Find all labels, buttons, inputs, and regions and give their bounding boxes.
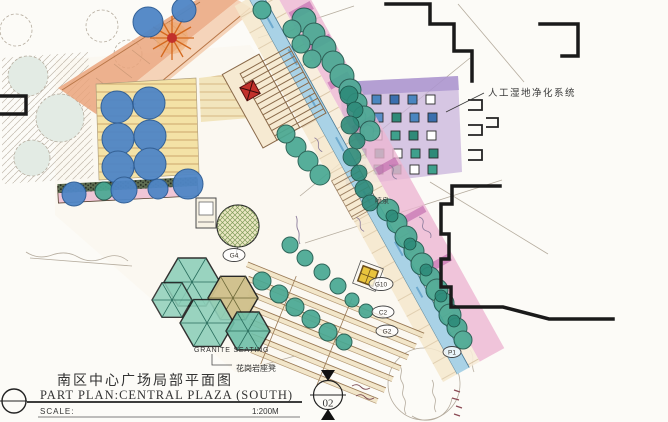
site-plan-svg: G4 G10 C2 G2 P1 人工湿地净化系统 喷泉 GRANITE SEAT… — [0, 0, 668, 422]
marker-label: G4 — [230, 253, 239, 260]
granite-seating-en-label: GRANITE SEATING — [194, 347, 269, 354]
marker-label: G10 — [375, 282, 388, 289]
granite-seating-cn-label: 花岗岩座凳 — [236, 363, 276, 373]
marker-label: G2 — [383, 329, 392, 336]
scale-label: SCALE: — [40, 407, 74, 416]
plan-title-en: PART PLAN:CENTRAL PLAZA (SOUTH) — [40, 388, 293, 402]
wetland-system-label: 人工湿地净化系统 — [488, 87, 576, 99]
kiosk-structure — [196, 198, 216, 228]
marker-label: C2 — [379, 310, 388, 317]
marker-label: P1 — [448, 350, 456, 357]
section-number: 02 — [323, 398, 334, 410]
scale-value: 1:200M — [252, 407, 279, 416]
fountain-label: 喷泉 — [375, 196, 389, 205]
drawing-page: G4 G10 C2 G2 P1 人工湿地净化系统 喷泉 GRANITE SEAT… — [0, 0, 668, 422]
plan-title-cn: 南区中心广场局部平面图 — [57, 373, 233, 389]
